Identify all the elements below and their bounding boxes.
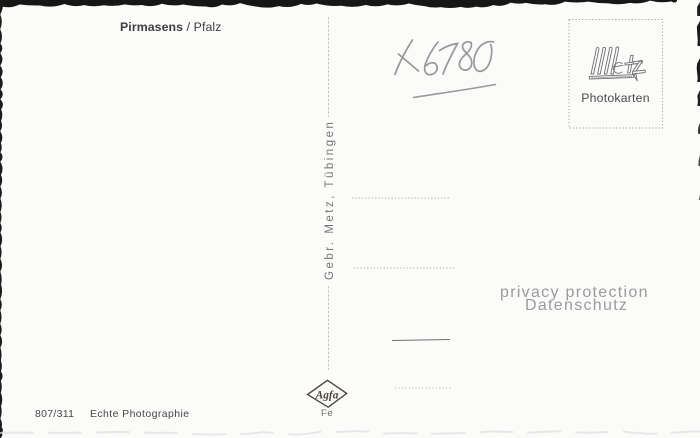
svg-text:Agfa: Agfa — [315, 390, 339, 402]
